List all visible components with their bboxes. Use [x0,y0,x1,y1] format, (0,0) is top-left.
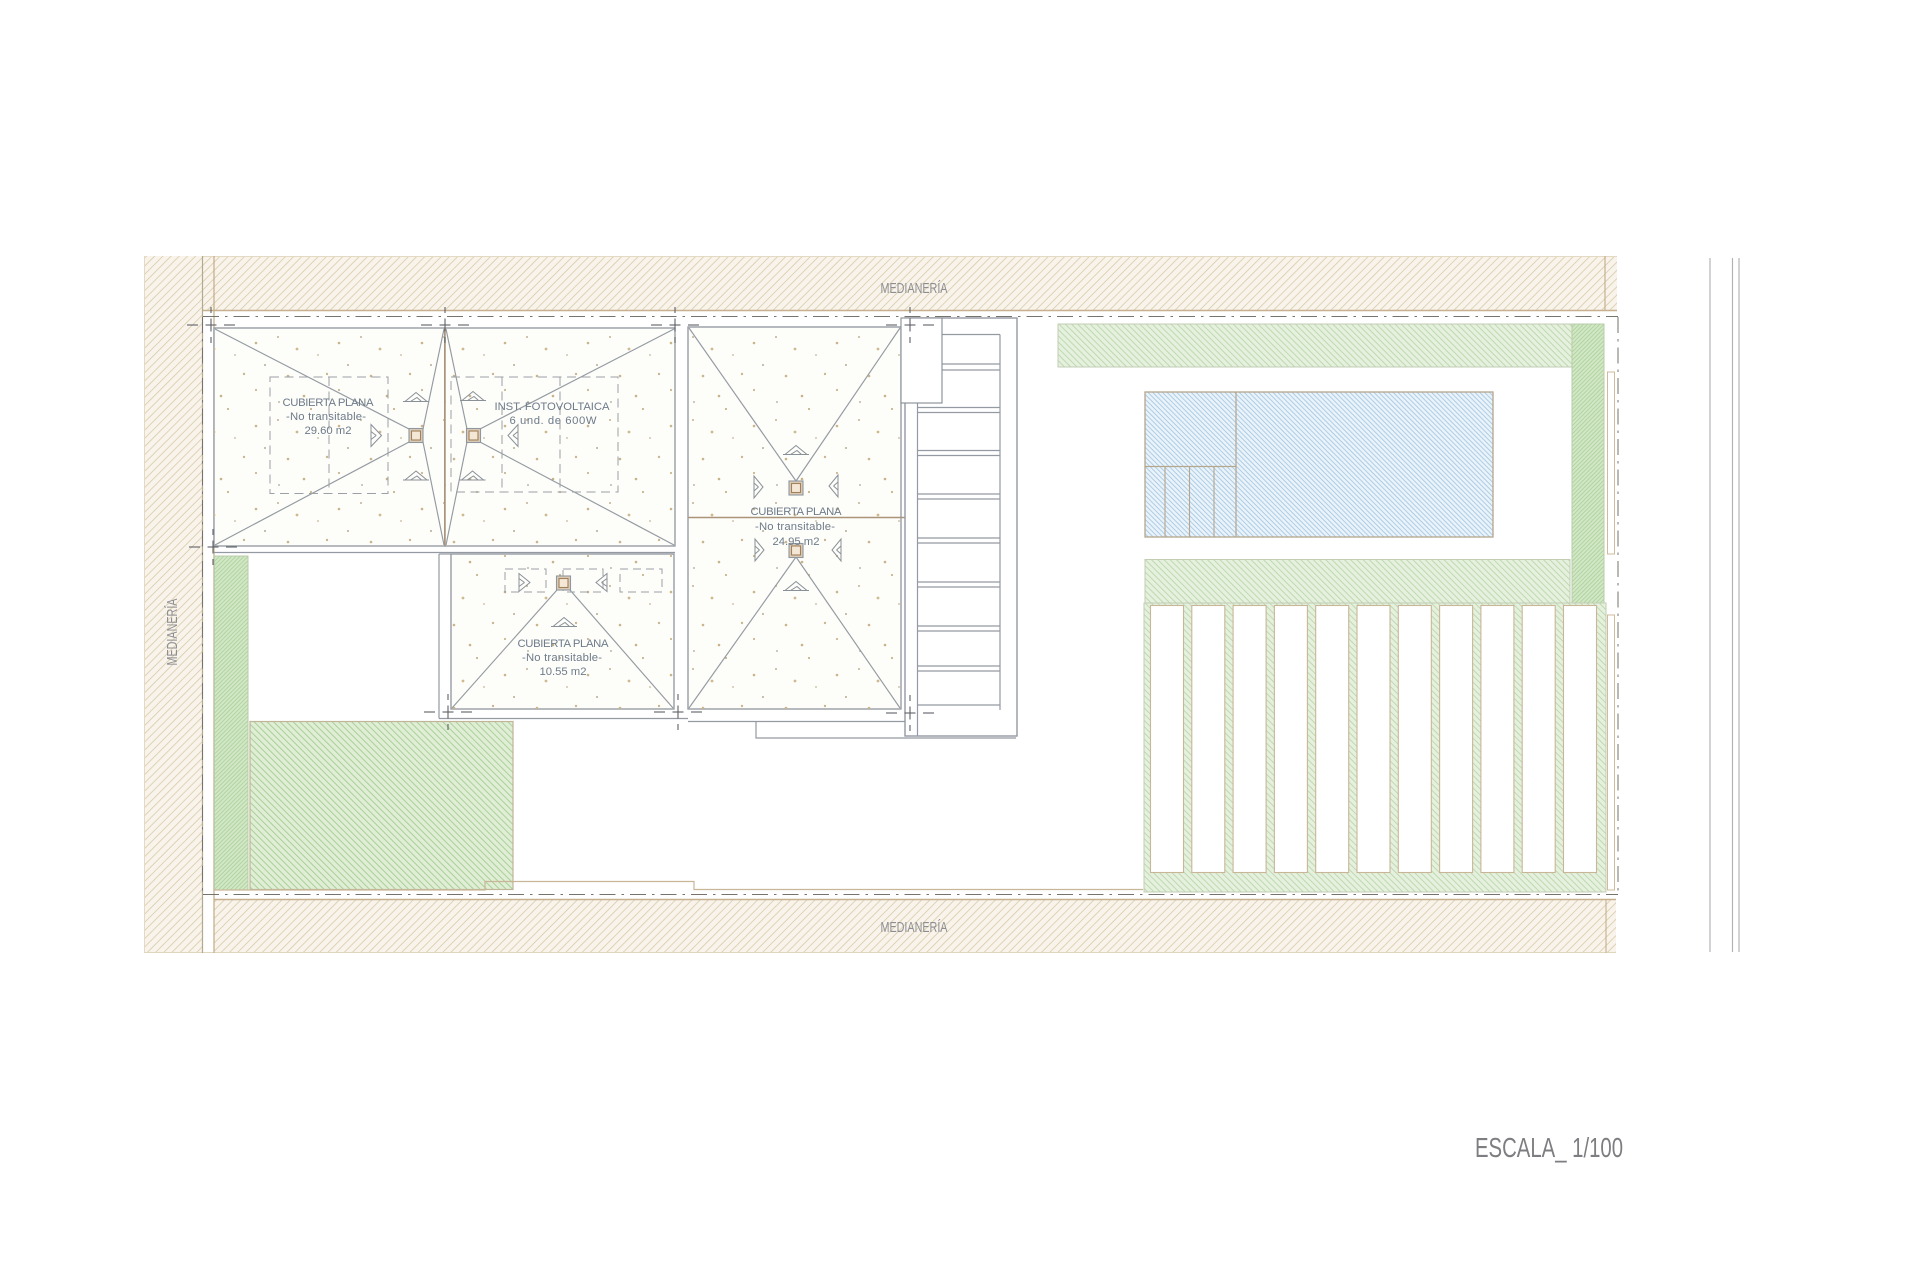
svg-text:-No transitable-: -No transitable- [286,411,366,423]
svg-text:CUBIERTA PLANA: CUBIERTA PLANA [518,638,609,650]
svg-text:6 und. de 600W: 6 und. de 600W [510,415,597,427]
svg-text:CUBIERTA PLANA: CUBIERTA PLANA [751,506,842,518]
svg-text:24.95 m2: 24.95 m2 [773,536,820,548]
svg-text:10.55 m2: 10.55 m2 [540,666,587,678]
svg-text:CUBIERTA PLANA: CUBIERTA PLANA [283,397,374,409]
svg-text:INST. FOTOVOLTAICA: INST. FOTOVOLTAICA [495,401,610,413]
svg-text:-No transitable-: -No transitable- [755,521,835,533]
svg-text:29.60 m2: 29.60 m2 [305,425,352,437]
svg-text:MEDIANERÍA: MEDIANERÍA [881,280,948,297]
svg-text:-No transitable-: -No transitable- [522,652,602,664]
svg-text:MEDIANERÍA: MEDIANERÍA [164,599,181,666]
svg-text:ESCALA_ 1/100: ESCALA_ 1/100 [1475,1132,1623,1163]
svg-text:MEDIANERÍA: MEDIANERÍA [881,919,948,936]
